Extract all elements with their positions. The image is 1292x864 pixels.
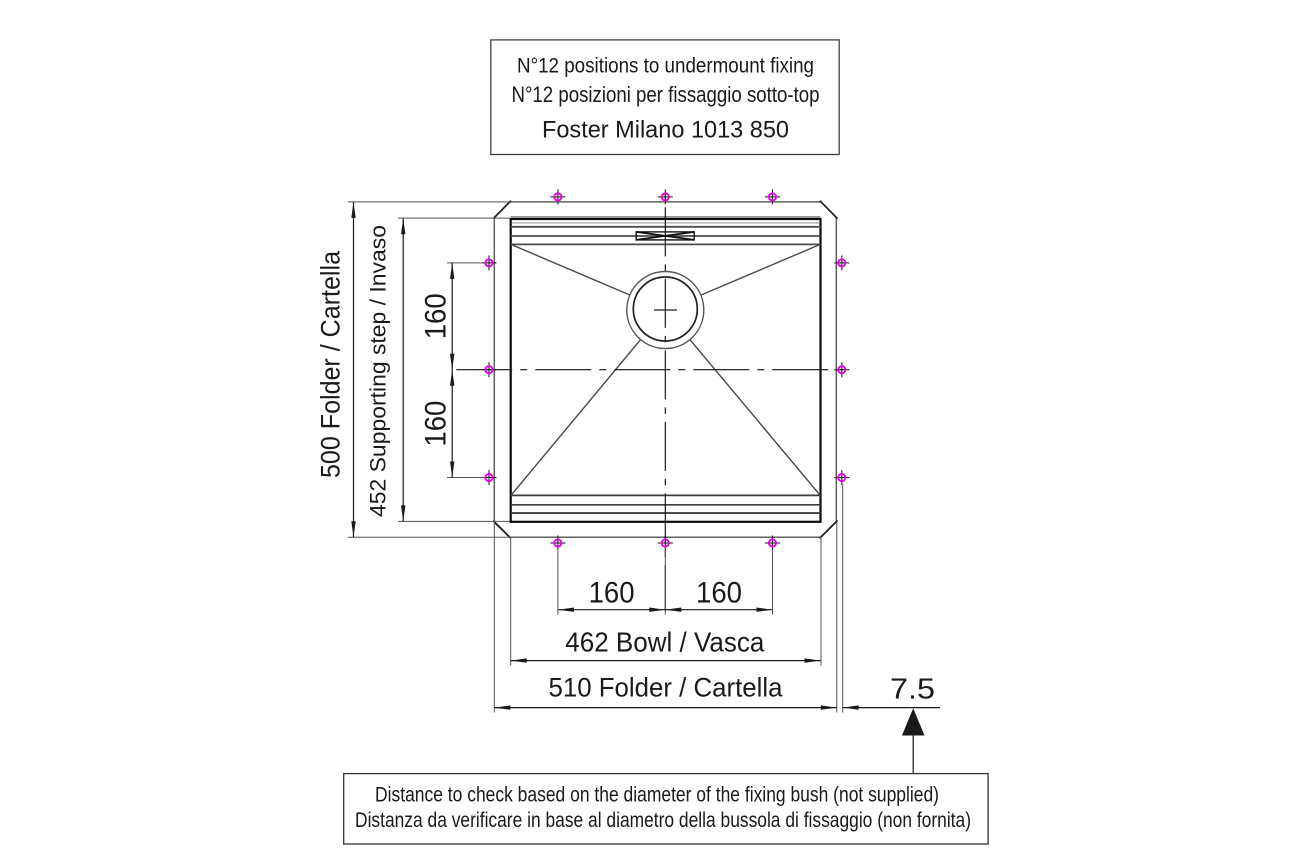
svg-text:452 Supporting step / Invaso: 452 Supporting step / Invaso <box>366 225 391 517</box>
svg-text:Distance to check based on the: Distance to check based on the diameter … <box>375 782 939 806</box>
svg-text:462 Bowl / Vasca: 462 Bowl / Vasca <box>565 626 765 657</box>
svg-text:160: 160 <box>419 293 452 339</box>
svg-text:N°12 posizioni per fissaggio s: N°12 posizioni per fissaggio sotto-top <box>512 82 820 107</box>
svg-text:N°12 positions to undermount f: N°12 positions to undermount fixing <box>517 54 814 78</box>
svg-text:160: 160 <box>419 401 452 447</box>
svg-text:Distanza da verificare in base: Distanza da verificare in base al diamet… <box>355 808 971 832</box>
svg-text:500 Folder / Cartella: 500 Folder / Cartella <box>316 250 346 478</box>
svg-text:160: 160 <box>696 576 742 609</box>
svg-text:160: 160 <box>589 576 635 609</box>
svg-text:7.5: 7.5 <box>890 673 935 705</box>
svg-text:510 Folder / Cartella: 510 Folder / Cartella <box>549 672 784 702</box>
svg-text:Foster Milano 1013 850: Foster Milano 1013 850 <box>542 118 789 144</box>
